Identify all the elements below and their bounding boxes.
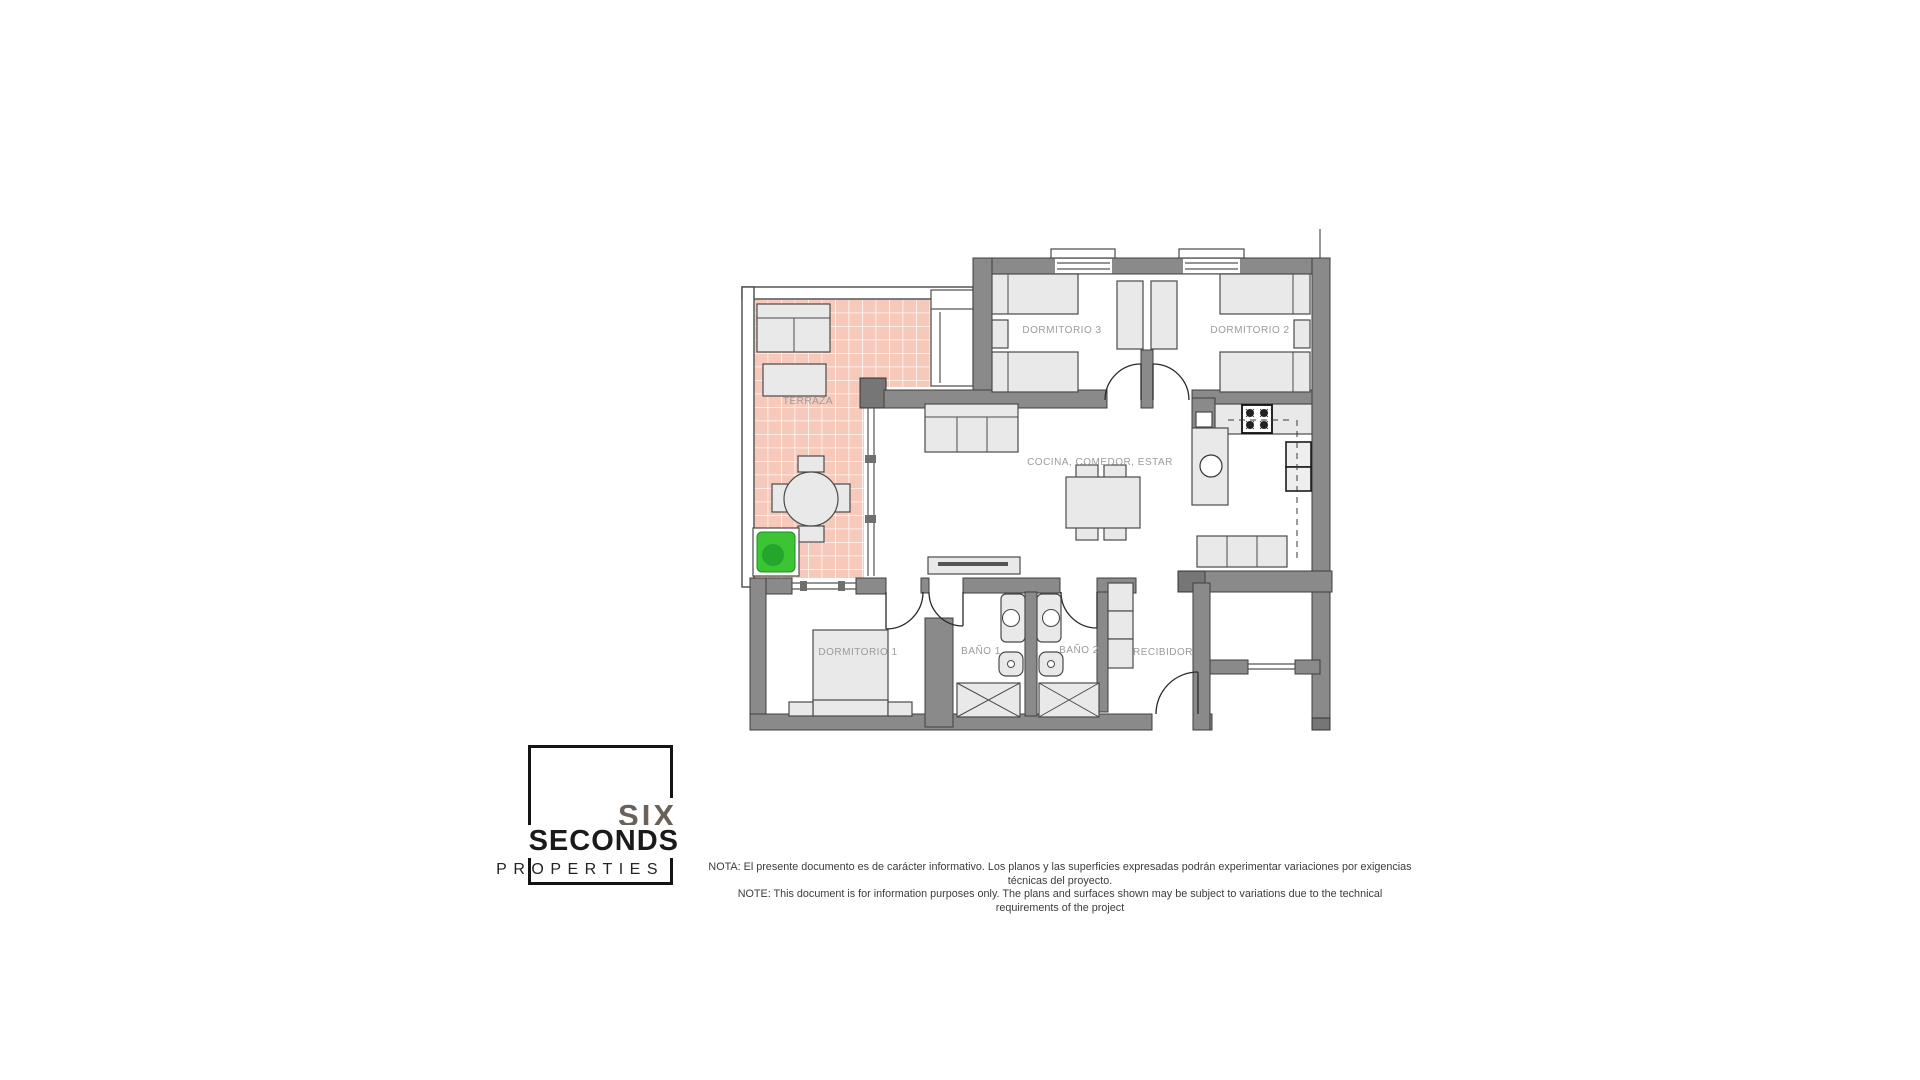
nightstand <box>992 320 1008 348</box>
wall-stub-doors <box>921 578 929 593</box>
window-dormitorio1-terrace <box>752 578 886 594</box>
toilet <box>1001 594 1025 642</box>
nightstand <box>1294 320 1310 348</box>
bed <box>992 352 1078 392</box>
wall-right-exterior <box>1312 258 1330 730</box>
wall-bedroom3-left <box>973 258 992 408</box>
wall-d1-bano1 <box>925 618 953 727</box>
floor-plan-sheet: TERRAZA DORMITORIO 3 DORMITORIO 2 COCINA… <box>0 0 1920 1080</box>
sink <box>999 652 1023 676</box>
window-bedroom-3 <box>1051 249 1115 273</box>
oven <box>1286 442 1311 467</box>
bed <box>1220 352 1310 392</box>
window-bedroom-2 <box>1179 249 1244 273</box>
living-sofa <box>925 404 1018 452</box>
dining-table-set <box>1066 465 1140 540</box>
nightstand <box>789 702 813 716</box>
nightstand <box>888 702 912 716</box>
dining-table <box>1066 477 1140 528</box>
bed <box>992 274 1078 314</box>
disclaimer-line-es: NOTA: El presente documento es de caráct… <box>708 861 1412 888</box>
door-bedroom-2 <box>1153 364 1189 400</box>
room-label-dormitorio-3: DORMITORIO 3 <box>1022 325 1101 336</box>
terrace-living-glass-wall <box>865 408 876 576</box>
terrace-bedroom-window <box>931 290 973 386</box>
terrace-table <box>763 364 826 396</box>
dormitorio-1-furniture <box>789 630 912 716</box>
terrace-sofa <box>757 304 830 352</box>
wardrobe <box>1117 281 1143 349</box>
kitchen-appliance-small <box>1196 412 1212 427</box>
wall-kitchen-bottom <box>1205 571 1332 592</box>
room-label-bano-1: BAÑO 1 <box>961 644 1001 657</box>
kitchen-bench <box>1197 536 1287 567</box>
room-label-dormitorio-2: DORMITORIO 2 <box>1210 325 1289 336</box>
plant <box>753 528 799 576</box>
headboard <box>813 700 888 716</box>
room-label-terraza: TERRAZA <box>783 396 833 407</box>
wardrobe <box>1151 281 1177 349</box>
room-label-bano-2: BAÑO 2 <box>1059 643 1099 656</box>
room-label-recibidor: RECIBIDOR <box>1133 647 1193 658</box>
shower <box>957 683 1020 717</box>
wardrobes <box>1117 281 1177 349</box>
sink <box>1200 455 1222 477</box>
wall-recibidor-right <box>1193 583 1210 730</box>
door-dormitorio-1 <box>886 592 923 629</box>
stove <box>1242 405 1272 433</box>
wall-bano1-bano2 <box>1025 592 1037 716</box>
shower <box>1039 683 1099 717</box>
room-label-cocina: COCINA, COMEDOR, ESTAR <box>1027 457 1173 468</box>
disclaimer-line-en: NOTE: This document is for information p… <box>708 888 1412 915</box>
recibidor-closet <box>1108 583 1133 668</box>
door-bano-2 <box>1061 592 1097 628</box>
kitchen <box>1192 398 1312 567</box>
wall-corner-terrace <box>860 378 886 408</box>
room-label-dormitorio-1: DORMITORIO 1 <box>818 647 897 658</box>
fridge <box>1286 467 1311 491</box>
tv-unit <box>928 557 1020 574</box>
wall-door-stub <box>1141 350 1153 408</box>
wall-banos-top <box>963 578 1060 593</box>
wall-top <box>973 258 1330 274</box>
wall-left-exterior <box>750 578 766 730</box>
six-seconds-logo: SIX SECONDS PROPERTIES <box>528 745 673 885</box>
living-room-furniture <box>925 404 1140 574</box>
bed <box>1220 274 1310 314</box>
terrace-wall-left <box>742 287 754 587</box>
door-bedroom-3 <box>1105 364 1141 400</box>
floor-plan: TERRAZA DORMITORIO 3 DORMITORIO 2 COCINA… <box>0 0 1920 1080</box>
double-bed <box>813 630 888 704</box>
door-entry <box>1156 672 1198 714</box>
logo-word-seconds: SECONDS <box>521 825 679 858</box>
logo-word-properties: PROPERTIES <box>496 862 664 878</box>
disclaimer-note: NOTA: El presente documento es de caráct… <box>708 861 1412 915</box>
toilet <box>1037 594 1061 642</box>
